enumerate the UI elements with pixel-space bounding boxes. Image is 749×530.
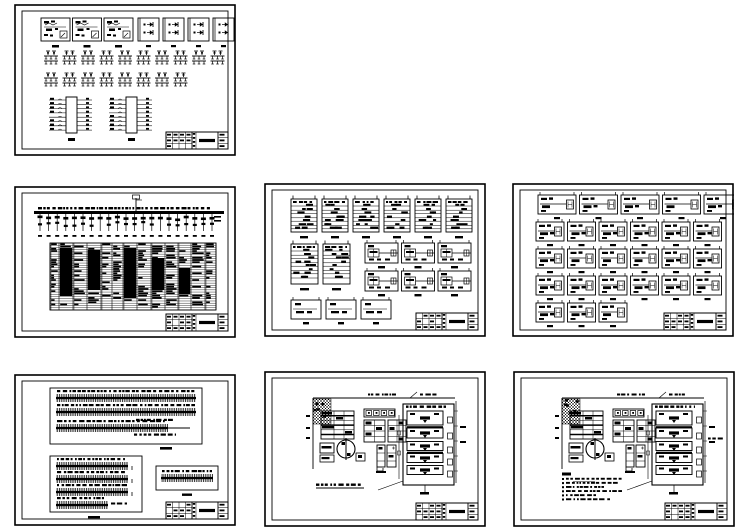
circuit-blocks [291,196,472,325]
terminal-strips [50,388,218,518]
sheet-layout-plan-notes[interactable] [513,371,735,527]
layout-plan [555,392,723,501]
title-block [166,132,228,149]
distribution-system-schedule-sheet-drawing [14,186,236,338]
drawing-set-canvas [0,0,749,530]
bus-and-schedule [34,195,224,310]
title-block [416,503,478,520]
module-schematics [41,18,234,141]
title-block [665,503,727,520]
sheet-control-modules[interactable] [14,4,236,156]
title-block [166,502,228,519]
panel-circuit-blocks-sheet-drawing [264,183,486,337]
title-block [664,313,726,330]
sheet-terminal-strips[interactable] [14,374,236,526]
equipment-layout-plan-with-notes-sheet-drawing [513,371,735,527]
layout-plan [306,392,466,495]
branch-circuit-blocks-sheet-drawing [512,183,734,337]
title-block [416,313,478,330]
sheet-branch-circuit-blocks[interactable] [512,183,734,337]
terminal-strip-wiring-sheet-drawing [14,374,236,526]
sheet-panel-circuit-blocks[interactable] [264,183,486,337]
sheet-layout-plan[interactable] [264,371,486,527]
control-modules-schematic-sheet-drawing [14,4,236,156]
branch-blocks [536,192,734,327]
sheet-distribution-schedule[interactable] [14,186,236,338]
equipment-layout-plan-sheet-drawing [264,371,486,527]
title-block [166,314,228,331]
